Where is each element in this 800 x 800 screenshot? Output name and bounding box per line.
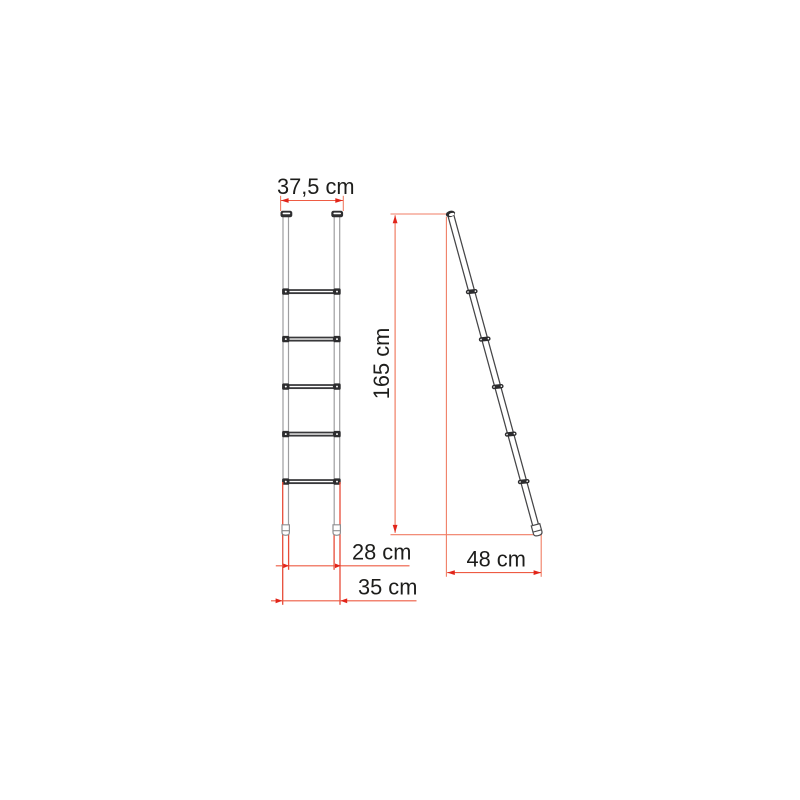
svg-text:165 cm: 165 cm <box>369 328 394 399</box>
svg-text:28 cm: 28 cm <box>352 539 411 564</box>
svg-text:37,5 cm: 37,5 cm <box>277 174 355 199</box>
svg-text:48 cm: 48 cm <box>467 546 526 571</box>
svg-text:35 cm: 35 cm <box>358 575 417 600</box>
